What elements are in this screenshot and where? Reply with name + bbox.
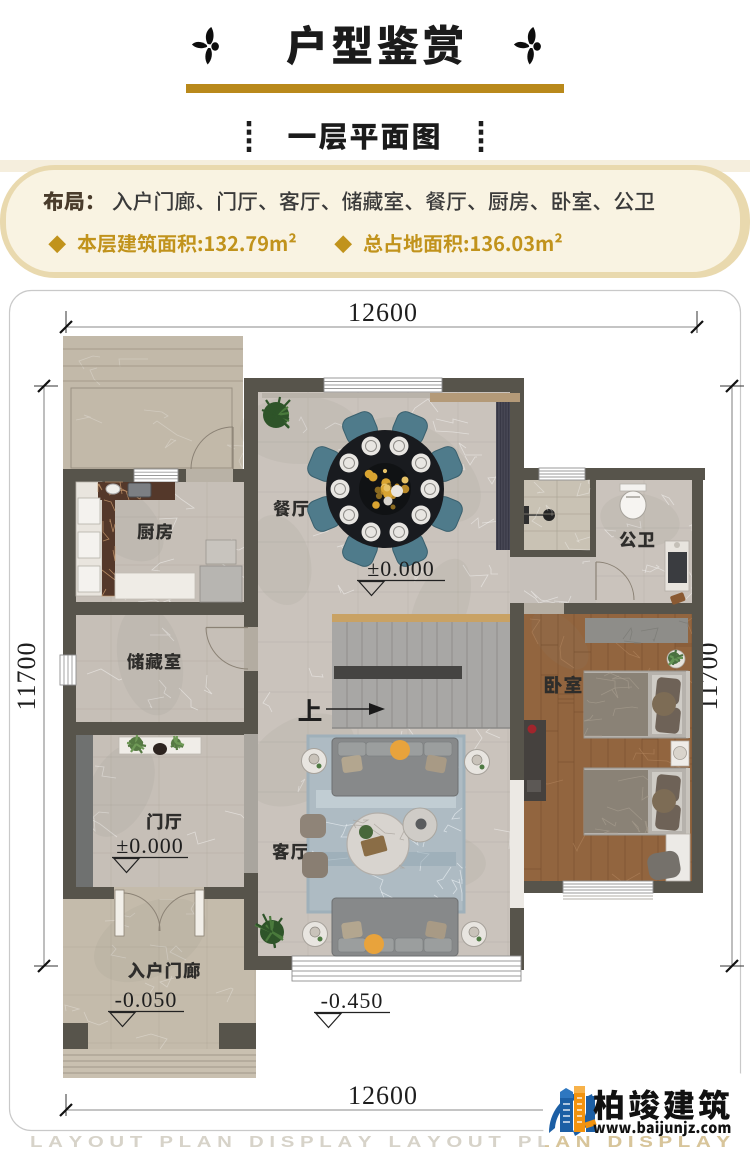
svg-text:-0.050: -0.050 xyxy=(115,987,178,1012)
svg-text:±0.000: ±0.000 xyxy=(367,556,435,581)
svg-text:-0.450: -0.450 xyxy=(321,988,384,1013)
svg-text:±0.000: ±0.000 xyxy=(116,833,184,858)
svg-text:12600: 12600 xyxy=(348,298,418,327)
svg-text:12600: 12600 xyxy=(348,1081,418,1110)
svg-text:11700: 11700 xyxy=(12,641,41,710)
